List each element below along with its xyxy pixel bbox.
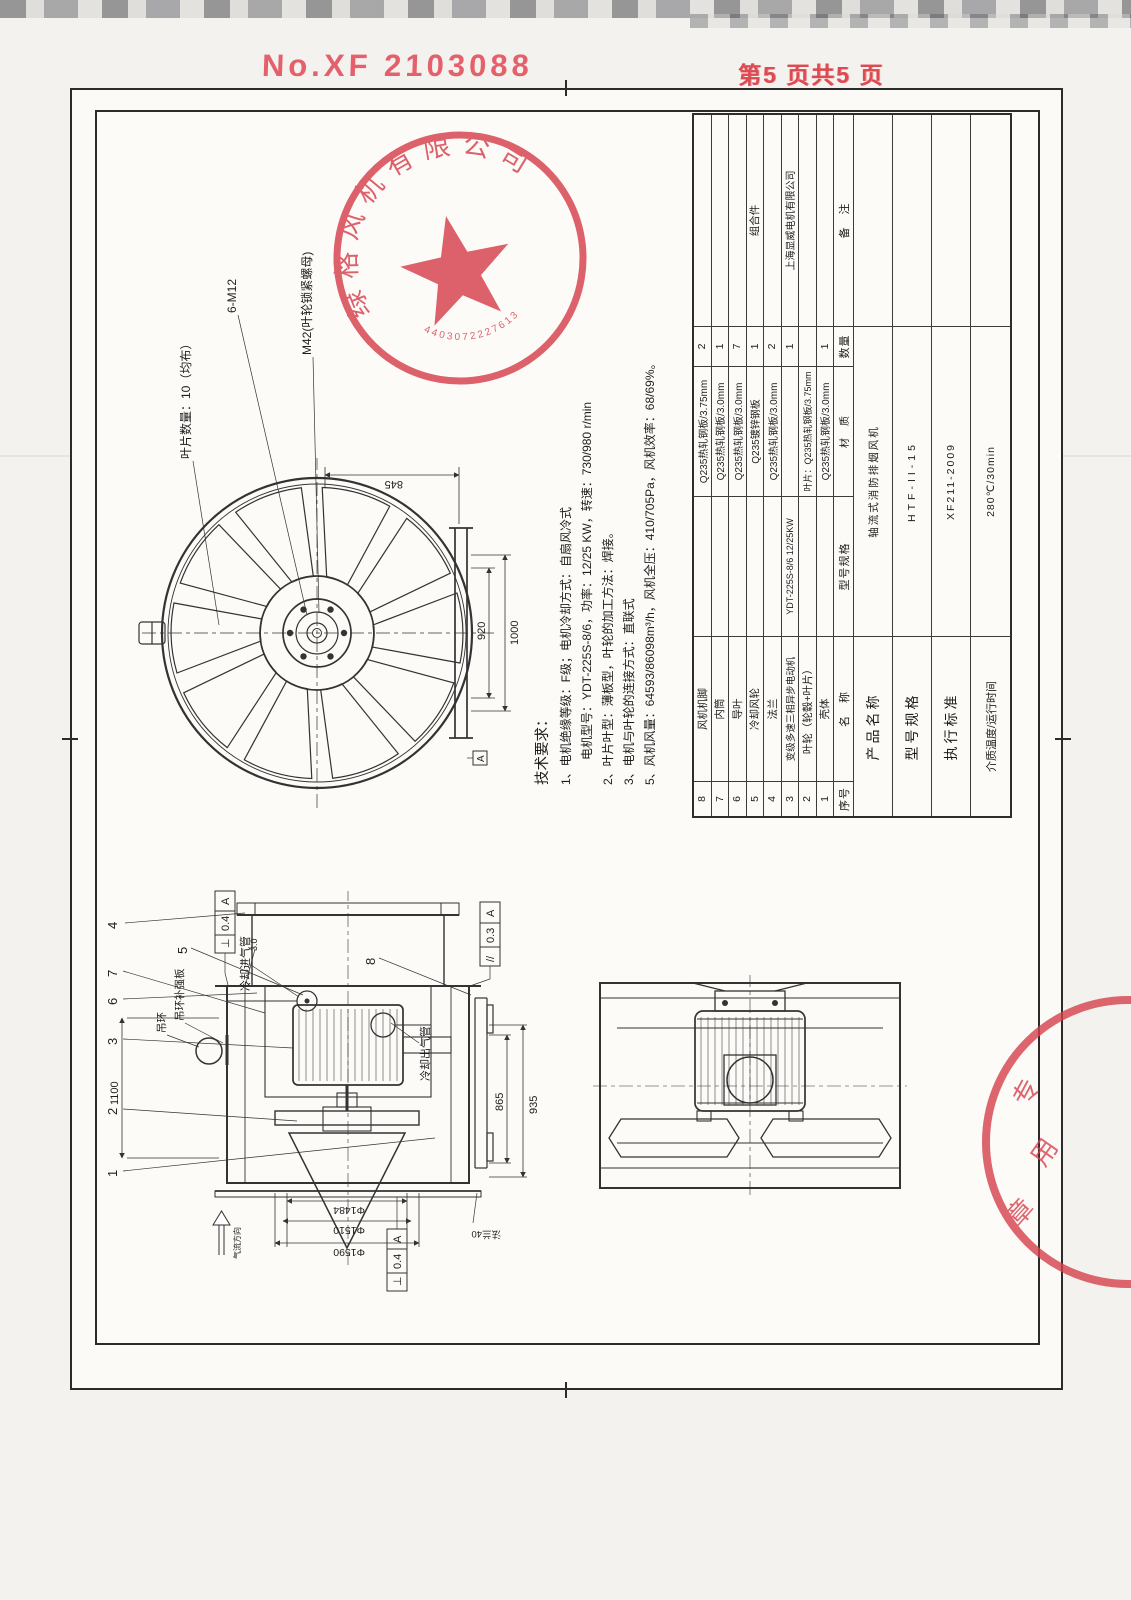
- bom-note: 上海显威电机有限公司: [782, 115, 800, 326]
- callout-7: 7: [105, 970, 120, 977]
- bolt-label: 6-M12: [225, 279, 239, 313]
- callout-1: 1: [105, 1170, 120, 1177]
- callout-3: 3: [105, 1038, 120, 1045]
- drawing-sheet: 叶片数量：10（均布） 6-M12 M42(叶轮锁紧螺母) 920 1000 8…: [95, 110, 1040, 1345]
- bom-note: [712, 115, 730, 326]
- callout-8: 8: [363, 958, 378, 965]
- bom-spec: [712, 496, 730, 636]
- bom-material: [782, 366, 800, 496]
- bom-spec: [817, 496, 835, 636]
- bom-no: 4: [764, 781, 782, 816]
- title-row-standard: 执行标准 XF211-2009: [932, 115, 971, 816]
- model-number: HTF-II-15: [893, 326, 932, 636]
- bom-note: [764, 115, 782, 326]
- bom-spec: [799, 496, 817, 636]
- callout-6: 6: [105, 998, 120, 1005]
- callout-4: 4: [105, 922, 120, 929]
- bom-note: 组合件: [747, 115, 765, 326]
- tech-line-3: 2、叶片叶型：薄板型，叶轮的加工方法：焊接。: [598, 315, 619, 785]
- title-label: 产品名称: [854, 636, 893, 816]
- bom-spec: YDT-225S-8/6 12/25KW: [782, 496, 800, 636]
- border-tick-right: [1055, 738, 1071, 740]
- technical-requirements: 技术要求： 1、电机绝缘等级：F级；电机冷却方式：自扇风冷式 电机型号：YDT-…: [533, 315, 661, 785]
- gdt1-symbol: ⊥: [220, 938, 232, 948]
- bom-header-note: 备 注: [834, 115, 854, 326]
- dim-935: 935: [528, 1096, 540, 1114]
- bom-name: 风机机脚: [694, 636, 712, 781]
- bom-note: [817, 115, 835, 326]
- bom-no: 7: [712, 781, 730, 816]
- bom-spec: [747, 496, 765, 636]
- bom-note: [799, 115, 817, 326]
- tech-line-1: 1、电机绝缘等级：F级；电机冷却方式：自扇风冷式: [556, 315, 577, 785]
- bom-material: 叶片：Q235热轧钢板/3.75mm: [799, 366, 817, 496]
- title-label: 型号规格: [893, 636, 932, 816]
- bom-qty: 1: [747, 326, 765, 366]
- thickness-label: 3.0: [249, 938, 259, 951]
- bom-header-no: 序号: [834, 781, 854, 816]
- table-row: 8 风机机脚 Q235热轧钢板/3.75mm 2: [694, 115, 712, 816]
- dim-phi1484: Φ1484: [333, 1204, 365, 1216]
- bom-no: 2: [799, 781, 817, 816]
- fan-front-view: [139, 315, 511, 808]
- table-row: 1 壳体 Q235热轧钢板/3.0mm 1: [817, 115, 835, 816]
- bom-name: 法兰: [764, 636, 782, 781]
- lifting-ring-label: 吊环: [156, 1012, 168, 1033]
- end-view: [593, 975, 907, 1195]
- bom-qty: [799, 326, 817, 366]
- bom-name: 冷却风轮: [747, 636, 765, 781]
- bom-qty: 7: [729, 326, 747, 366]
- dim-845: 845: [385, 478, 403, 490]
- table-row: 3 变级多速三相异步电动机 YDT-225S-8/6 12/25KW 1 上海显…: [782, 115, 800, 816]
- airflow-label: 气流方向: [232, 1227, 242, 1259]
- bom-name: 导叶: [729, 636, 747, 781]
- title-empty: [893, 115, 932, 326]
- bom-material: Q235热轧钢板/3.75mm: [694, 366, 712, 496]
- border-tick-left: [62, 738, 78, 740]
- tech-line-5: 5、风机风量：64593/86098m³/h，风机全压：410/705Pa，风机…: [640, 315, 661, 785]
- title-empty: [971, 115, 1010, 326]
- bom-no: 8: [694, 781, 712, 816]
- bom-qty: 1: [817, 326, 835, 366]
- end-view-motor: [695, 1011, 805, 1111]
- dim-phi1590: Φ1590: [333, 1246, 365, 1258]
- bom-material: Q235镀锌钢板: [747, 366, 765, 496]
- title-empty: [854, 115, 893, 326]
- gdt3-datum: A: [392, 1235, 404, 1243]
- datum-a: A: [476, 755, 487, 762]
- scan-artifact-band-right: [690, 14, 1131, 28]
- bom-no: 3: [782, 781, 800, 816]
- base-frame: [475, 998, 493, 1168]
- gdt2-value: 0.3: [485, 928, 497, 943]
- bom-note: [694, 115, 712, 326]
- gdt1-value: 0.4: [220, 916, 232, 931]
- bom-spec: [764, 496, 782, 636]
- bom-name: 变级多速三相异步电动机: [782, 636, 800, 781]
- title-row-model: 型号规格 HTF-II-15: [893, 115, 932, 816]
- dim-1100: 1100: [109, 1081, 121, 1105]
- bom-material: Q235热轧钢板/3.0mm: [729, 366, 747, 496]
- bom-note: [729, 115, 747, 326]
- bom-spec: [729, 496, 747, 636]
- table-row: 4 法兰 Q235热轧钢板/3.0mm 2: [764, 115, 782, 816]
- scanned-drawing-page: No.XF 2103088 第5 页共5 页: [0, 0, 1131, 1600]
- callout-2: 2: [105, 1108, 120, 1115]
- bom-header-material: 材 质: [834, 366, 854, 496]
- lifting-ring: [196, 1035, 227, 1065]
- bom-header-row: 序号 名 称 型号规格 材 质 数量 备 注: [834, 115, 854, 816]
- gdt2-datum: A: [485, 909, 497, 917]
- ring-plate-label: 吊环补强板: [173, 968, 186, 1021]
- table-row: 6 导叶 Q235热轧钢板/3.0mm 7: [729, 115, 747, 816]
- dim-920: 920: [476, 622, 488, 640]
- title-row-temperature: 介质温度/运行时间 280℃/30min: [971, 115, 1010, 816]
- temperature-duration: 280℃/30min: [971, 326, 1010, 636]
- rotated-sheet-wrapper: 叶片数量：10（均布） 6-M12 M42(叶轮锁紧螺母) 920 1000 8…: [95, 110, 1040, 1345]
- dim-865: 865: [494, 1093, 506, 1111]
- tech-line-2: 电机型号：YDT-225S-8/6，功率：12/25 KW，转速：730/980…: [577, 315, 598, 785]
- title-label: 执行标准: [932, 636, 971, 816]
- bom-qty: 1: [782, 326, 800, 366]
- bom-no: 5: [747, 781, 765, 816]
- tech-line-4: 3、电机与叶轮的连接方式：直联式: [619, 315, 640, 785]
- gdt3-symbol: ⊥: [392, 1276, 404, 1286]
- table-row: 7 内筒 Q235热轧钢板/3.0mm 1: [712, 115, 730, 816]
- gdt3-value: 0.4: [392, 1254, 404, 1269]
- cooling-outlet-label: 冷却出气管: [418, 1026, 432, 1081]
- bom-name: 壳体: [817, 636, 835, 781]
- bom-header-qty: 数量: [834, 326, 854, 366]
- product-name: 轴流式消防排烟风机: [854, 326, 893, 636]
- flange40-label: 法兰40: [471, 1228, 501, 1240]
- side-section-view: [122, 751, 527, 1291]
- bom-header-name: 名 称: [834, 636, 854, 781]
- bom-no: 6: [729, 781, 747, 816]
- title-row-product: 产品名称 轴流式消防排烟风机: [854, 115, 893, 816]
- callout-5: 5: [175, 947, 190, 954]
- bom-material: Q235热轧钢板/3.0mm: [712, 366, 730, 496]
- bom-table: 8 风机机脚 Q235热轧钢板/3.75mm 2 7 内筒 Q235热轧钢板/3…: [692, 113, 1012, 818]
- bom-name: 内筒: [712, 636, 730, 781]
- gdt1-datum: A: [220, 897, 232, 905]
- bom-no: 1: [817, 781, 835, 816]
- bom-material: Q235热轧钢板/3.0mm: [764, 366, 782, 496]
- bom-qty: 1: [712, 326, 730, 366]
- nut-label: M42(叶轮锁紧螺母): [299, 252, 314, 355]
- table-row: 5 冷却风轮 Q235镀锌钢板 1 组合件: [747, 115, 765, 816]
- airflow-arrow: [213, 1211, 230, 1255]
- tech-title: 技术要求：: [533, 315, 554, 785]
- blade-count-label: 叶片数量：10（均布）: [178, 338, 193, 459]
- border-tick-bottom: [565, 1382, 567, 1398]
- page-indicator: 第5 页共5 页: [738, 56, 884, 90]
- table-row: 2 叶轮（轮毂+叶片） 叶片：Q235热轧钢板/3.75mm: [799, 115, 817, 816]
- bom-qty: 2: [694, 326, 712, 366]
- border-tick-top: [565, 80, 567, 96]
- dim-1000: 1000: [509, 621, 521, 645]
- title-label: 介质温度/运行时间: [971, 636, 1010, 816]
- gdt2-symbol: //: [485, 955, 497, 962]
- bom-spec: [694, 496, 712, 636]
- bom-header-spec: 型号规格: [834, 496, 854, 636]
- dim-phi1510: Φ1510: [333, 1224, 365, 1236]
- bom-name: 叶轮（轮毂+叶片）: [799, 636, 817, 781]
- title-empty: [932, 115, 971, 326]
- document-number: No.XF 2103088: [261, 48, 533, 84]
- standard-number: XF211-2009: [932, 326, 971, 636]
- bom-material: Q235热轧钢板/3.0mm: [817, 366, 835, 496]
- bom-qty: 2: [764, 326, 782, 366]
